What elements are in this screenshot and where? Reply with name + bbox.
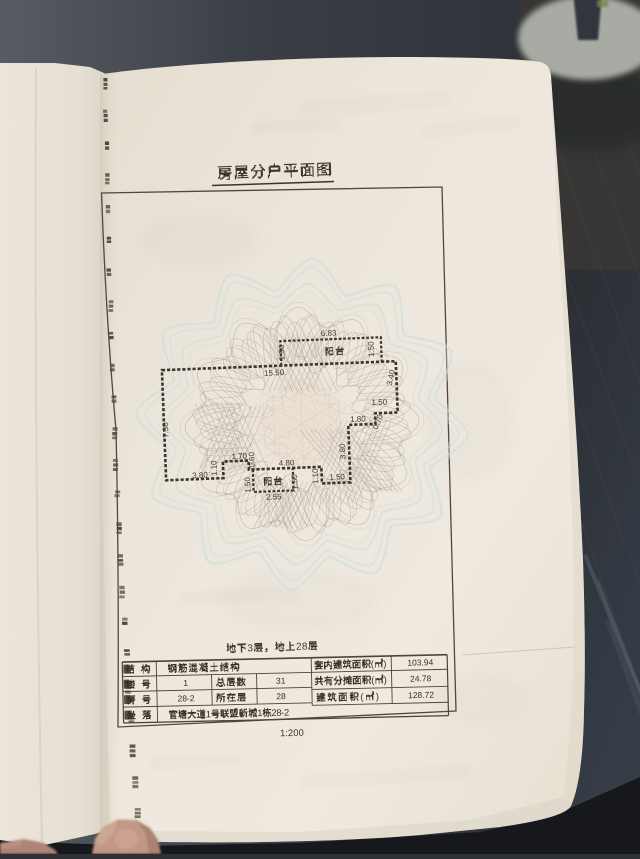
svg-text:6.83: 6.83 <box>321 328 337 338</box>
svg-text:1.50: 1.50 <box>371 398 387 408</box>
svg-text:28: 28 <box>276 691 286 701</box>
svg-text:1.50: 1.50 <box>277 344 287 360</box>
svg-text:1: 1 <box>183 678 188 688</box>
svg-text:0.60: 0.60 <box>247 451 257 467</box>
svg-text:128.72: 128.72 <box>408 690 434 701</box>
svg-text:1.50: 1.50 <box>366 341 376 357</box>
svg-text:103.94: 103.94 <box>407 657 433 668</box>
svg-text:1.50: 1.50 <box>329 472 345 482</box>
svg-text:1.80: 1.80 <box>350 414 366 424</box>
svg-text:8: 8 <box>302 641 308 652</box>
svg-text:7.30: 7.30 <box>161 422 171 438</box>
svg-text:3.80: 3.80 <box>338 443 348 459</box>
svg-text:31: 31 <box>276 676 286 686</box>
svg-text:3: 3 <box>247 643 253 654</box>
svg-text:1.10: 1.10 <box>311 468 321 484</box>
svg-text:2: 2 <box>284 707 289 717</box>
svg-text:2.55: 2.55 <box>266 492 282 502</box>
svg-text:24.78: 24.78 <box>410 673 432 683</box>
svg-text:1: 1 <box>206 709 211 719</box>
svg-text:): ) <box>376 692 379 703</box>
svg-text:15.50: 15.50 <box>264 368 285 378</box>
svg-text:): ) <box>383 659 386 670</box>
svg-text:1:200: 1:200 <box>280 728 304 740</box>
svg-text:): ) <box>384 675 387 686</box>
svg-text:28-2: 28-2 <box>177 693 195 703</box>
svg-text:3.80: 3.80 <box>192 470 208 480</box>
svg-text:1.50: 1.50 <box>243 476 253 492</box>
svg-text:4.80: 4.80 <box>279 458 295 468</box>
svg-text:1.70: 1.70 <box>231 451 247 461</box>
svg-text:1.50: 1.50 <box>290 474 300 490</box>
svg-text:1.10: 1.10 <box>209 460 219 476</box>
svg-text:1: 1 <box>257 708 262 718</box>
